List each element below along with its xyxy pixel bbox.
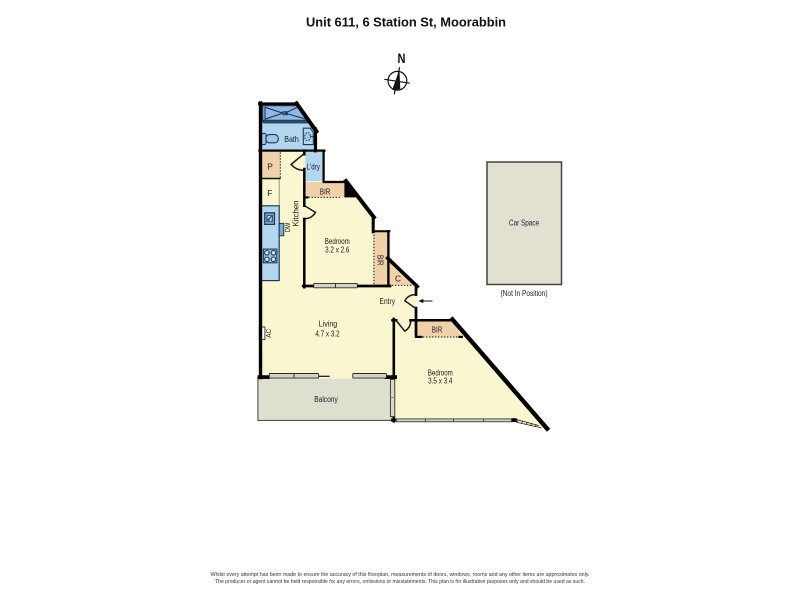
svg-text:C: C <box>395 274 401 284</box>
svg-text:DW: DW <box>283 223 292 233</box>
svg-text:BIR: BIR <box>320 187 331 197</box>
svg-text:Whilst every attempt has been: Whilst every attempt has been made to en… <box>211 572 590 578</box>
svg-text:Living: Living <box>319 319 338 329</box>
svg-text:BIR: BIR <box>432 325 443 335</box>
svg-text:Balcony: Balcony <box>314 394 338 404</box>
svg-text:F: F <box>267 188 272 198</box>
svg-text:L'dry: L'dry <box>307 161 321 171</box>
svg-text:AC: AC <box>264 329 273 338</box>
svg-text:BIR: BIR <box>375 255 385 266</box>
svg-text:3.2 x 2.6: 3.2 x 2.6 <box>325 245 350 255</box>
svg-text:4.7 x 3.2: 4.7 x 3.2 <box>315 328 340 338</box>
svg-text:The producer or agent cannot b: The producer or agent cannot be held res… <box>215 579 585 585</box>
svg-text:3.5 x 3.4: 3.5 x 3.4 <box>428 375 453 385</box>
svg-text:P: P <box>267 162 273 172</box>
svg-text:(Not In Position): (Not In Position) <box>501 288 548 298</box>
svg-text:Bath: Bath <box>284 134 299 144</box>
svg-text:Car Space: Car Space <box>509 218 539 228</box>
svg-text:Entry: Entry <box>380 296 396 306</box>
svg-text:Kitchen: Kitchen <box>290 200 300 226</box>
svg-text:Unit 611, 6 Station St, Moorab: Unit 611, 6 Station St, Moorabbin <box>306 15 506 30</box>
svg-text:N: N <box>398 51 406 66</box>
